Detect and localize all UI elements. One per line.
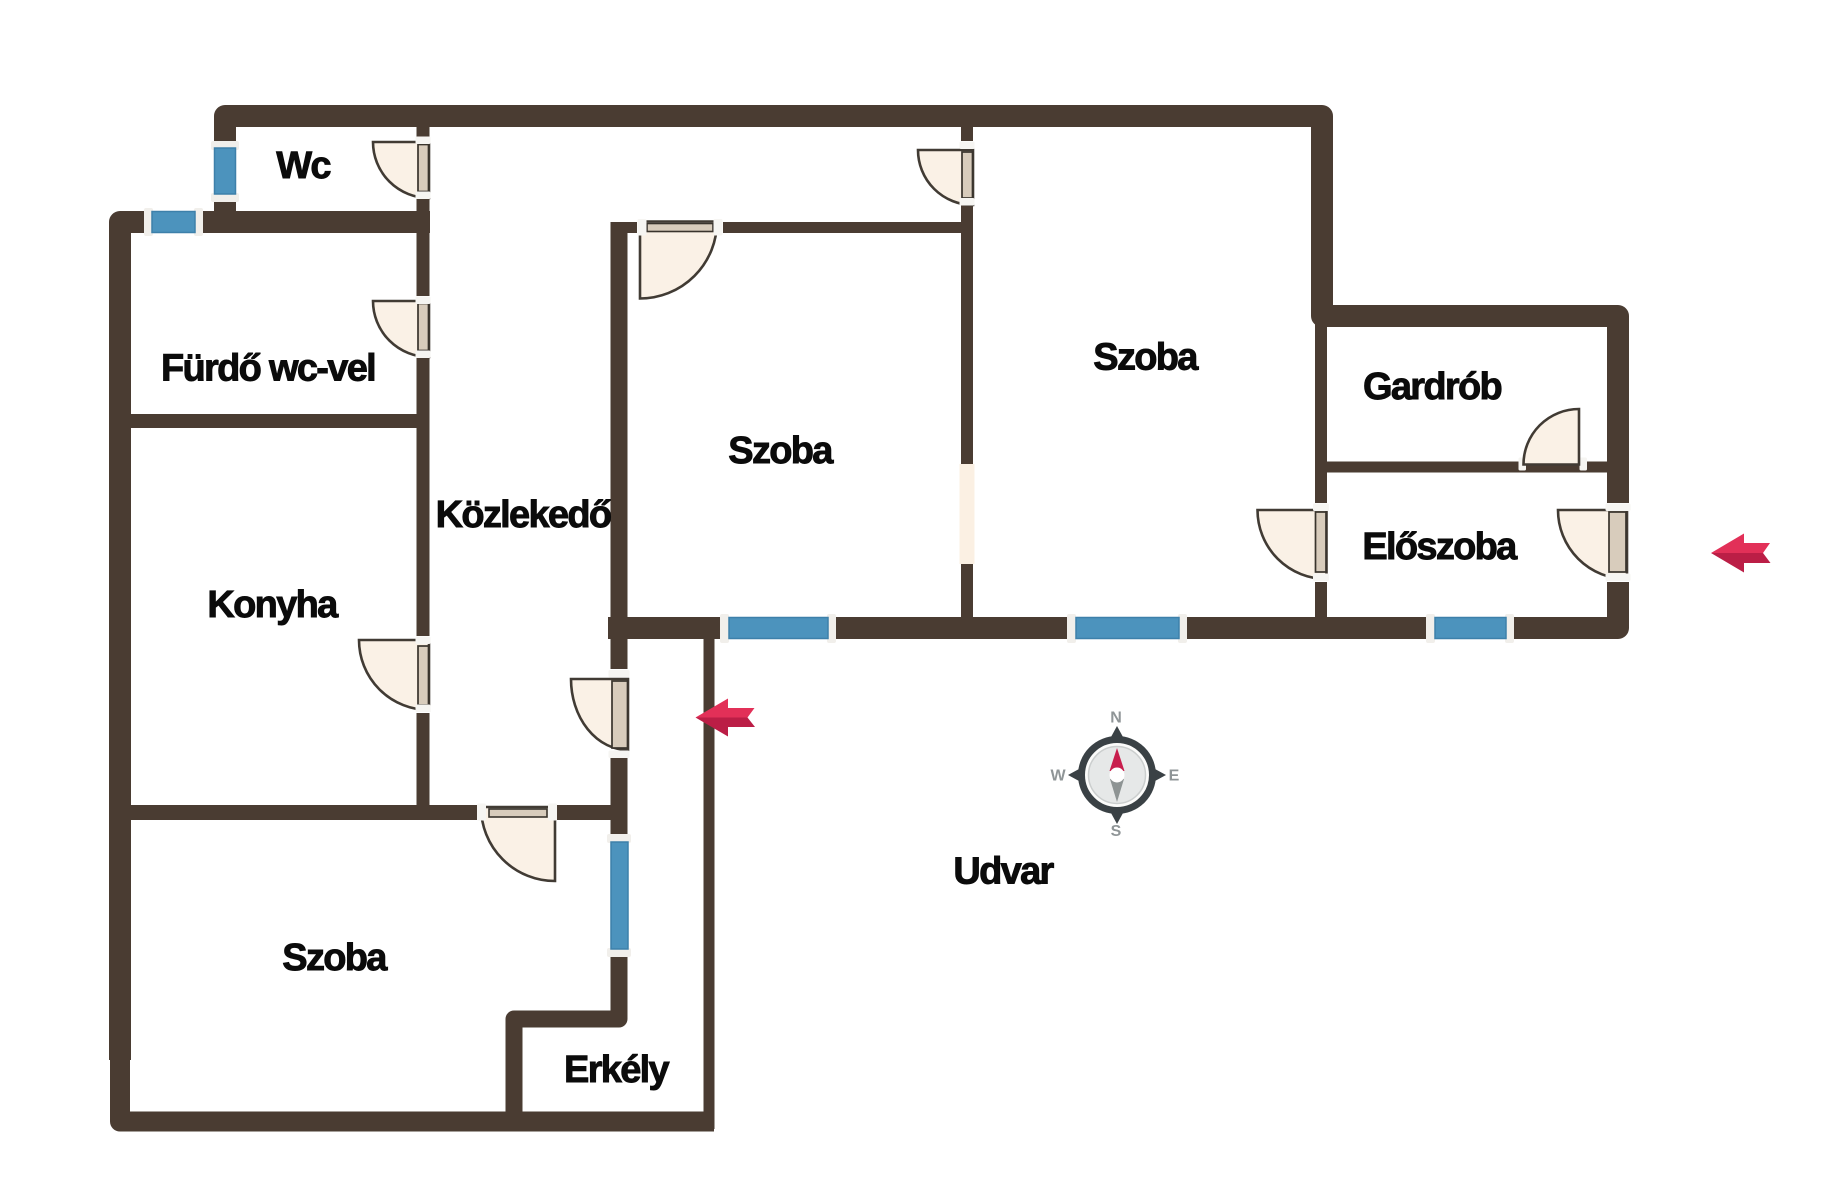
svg-text:Udvar: Udvar bbox=[953, 851, 1054, 893]
svg-text:Fürdő wc-vel: Fürdő wc-vel bbox=[161, 348, 375, 390]
svg-text:Konyha: Konyha bbox=[207, 584, 339, 626]
svg-text:Szoba: Szoba bbox=[282, 937, 388, 979]
svg-text:E: E bbox=[1169, 768, 1180, 785]
svg-text:Előszoba: Előszoba bbox=[1362, 526, 1518, 568]
svg-text:S: S bbox=[1111, 823, 1122, 840]
svg-text:Szoba: Szoba bbox=[728, 430, 834, 472]
svg-text:Szoba: Szoba bbox=[1093, 337, 1199, 379]
svg-text:Wc: Wc bbox=[276, 145, 331, 187]
svg-text:Gardrób: Gardrób bbox=[1363, 366, 1501, 408]
svg-text:Erkély: Erkély bbox=[564, 1049, 669, 1091]
svg-text:Közlekedő: Közlekedő bbox=[436, 494, 611, 536]
svg-text:W: W bbox=[1050, 768, 1066, 785]
svg-text:N: N bbox=[1110, 710, 1122, 727]
